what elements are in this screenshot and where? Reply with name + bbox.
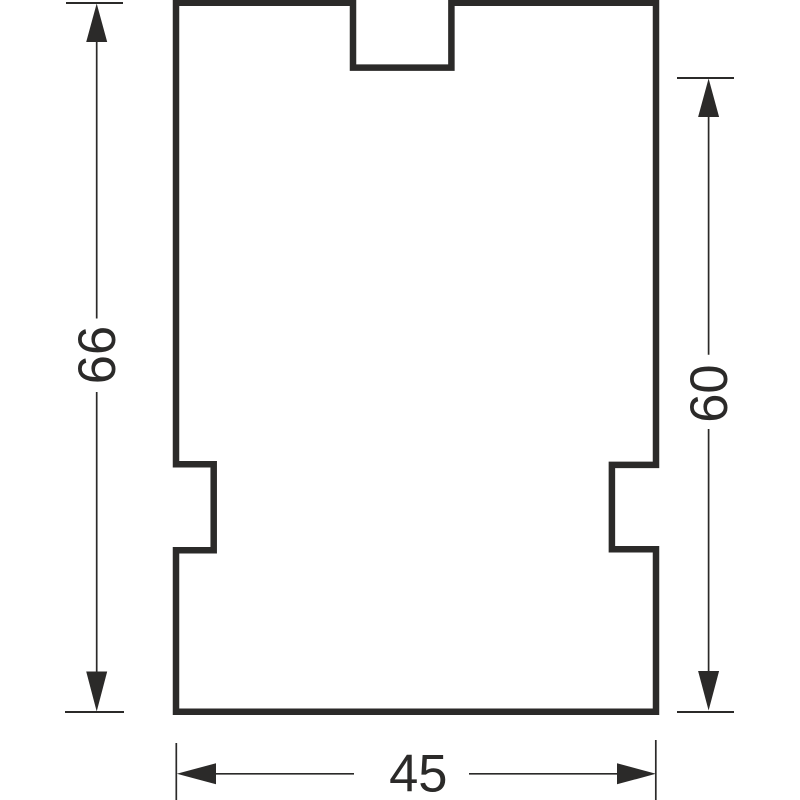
svg-text:60: 60 [680,364,739,422]
svg-text:66: 66 [68,326,127,384]
svg-text:45: 45 [389,744,447,800]
